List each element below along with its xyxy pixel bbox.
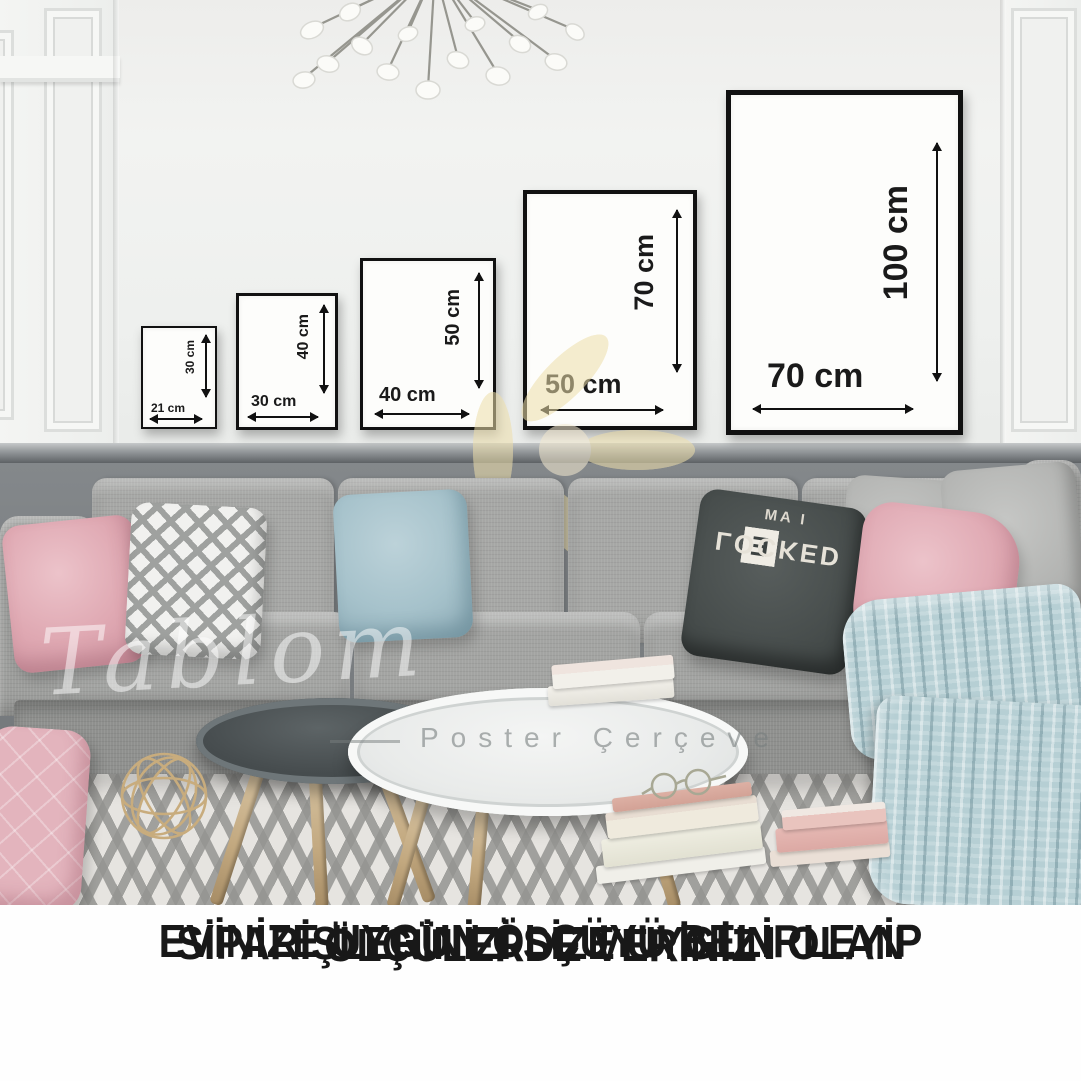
width-arrow-icon — [248, 416, 318, 418]
she-locked-pillow: I AM S H E LOCKED — [679, 487, 869, 677]
width-dimension-label: 70 cm — [767, 357, 863, 396]
poster-frame-30x40: 30 cm 40 cm — [236, 293, 338, 430]
height-dimension-label: 100 cm — [877, 185, 916, 300]
height-dimension-label: 70 cm — [629, 234, 660, 311]
watermark-dash — [330, 740, 400, 743]
geometric-pattern-pillow — [124, 502, 268, 661]
wall-panel-molding-right — [1011, 8, 1077, 432]
caption-line-3: ÖLÇÜLERDE VERİNİZ — [54, 923, 1027, 967]
height-arrow-icon — [676, 210, 678, 372]
height-arrow-icon — [478, 273, 480, 388]
poster-frame-21x30: 21 cm 30 cm — [141, 326, 217, 429]
blue-pillow — [332, 489, 474, 644]
height-dimension-label: 50 cm — [442, 289, 465, 346]
caption-band: EVİNİZE UYGUN ÖLÇÜYÜ BELİRLEYİP SİPARİŞL… — [0, 905, 1081, 1081]
pink-pillow-left — [1, 514, 148, 675]
height-dimension-label: 40 cm — [295, 314, 313, 359]
height-arrow-icon — [936, 143, 938, 381]
wainscot-ledge — [0, 443, 1081, 463]
wire-ball-ornament — [118, 746, 210, 846]
pink-pouf — [0, 725, 92, 914]
poster-frame-40x50: 40 cm 50 cm — [360, 258, 496, 430]
width-dimension-label: 50 cm — [545, 369, 622, 400]
width-dimension-label: 30 cm — [251, 393, 296, 411]
cornice-molding — [0, 56, 120, 82]
wall-corner — [113, 0, 119, 445]
width-arrow-icon — [753, 408, 913, 410]
height-dimension-label: 30 cm — [183, 340, 197, 374]
width-arrow-icon — [150, 418, 202, 420]
eyeglasses-icon — [640, 768, 730, 802]
poster-frame-70x100: 70 cm 100 cm — [726, 90, 963, 435]
width-dimension-label: 21 cm — [151, 401, 185, 415]
height-arrow-icon — [323, 305, 325, 393]
knit-blanket-drape — [867, 695, 1081, 914]
width-arrow-icon — [541, 409, 663, 411]
poster-frame-50x70: 50 cm 70 cm — [523, 190, 697, 430]
width-arrow-icon — [375, 413, 469, 415]
wall-panel-molding-far-left — [0, 30, 14, 420]
chandelier — [270, 0, 600, 110]
width-dimension-label: 40 cm — [379, 384, 436, 407]
product-photo: 21 cm 30 cm 30 cm 40 cm 40 cm 50 cm 50 c… — [0, 0, 1081, 1081]
wall-corner-right — [1000, 0, 1006, 445]
height-arrow-icon — [205, 335, 207, 397]
